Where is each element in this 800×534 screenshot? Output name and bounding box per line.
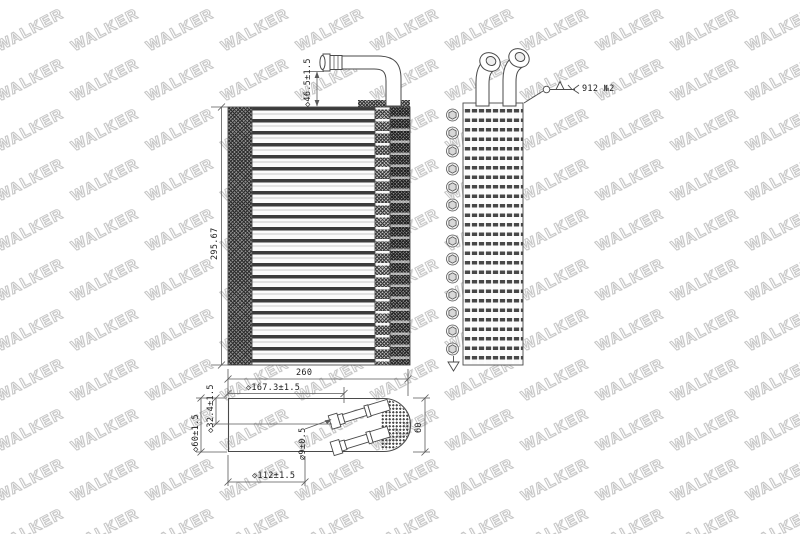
side-view-frame [463,103,523,365]
weld-note-text: 912 №2 [582,84,615,94]
technical-drawing-evaporator: WALKERWALKERWALKERWALKERWALKERWALKERWALK… [0,0,800,534]
dim-pipe-center-167: ◇167.3±1.5 [246,383,300,393]
weld-note-leader [524,82,579,104]
dim-pipe-dia-9: ⌀9±0.5 [298,427,308,460]
dim-pipe-offset-32: ◇32.4±1.5 [206,384,216,433]
dim-pipe-center-112: ◇112±1.5 [252,471,295,481]
front-view-frame [228,107,410,365]
side-view-hex-column [447,109,459,355]
dim-pipe-stub-height: ◇46.5±1.5 [303,58,313,107]
dim-overall-width: 260 [296,368,312,378]
side-view-pipes [476,45,532,106]
dimension-lines [196,72,430,487]
dim-depth: 60 [414,422,424,433]
bottom-view-pipes [328,398,390,456]
front-inlet-pipe [320,54,401,106]
dim-core-height: 295.67 [210,227,220,260]
datum-symbol [448,356,459,371]
dimension-arrows [315,72,332,425]
dim-depth-tol: ◇60±1.5 [191,414,201,452]
drawing-linework [0,0,800,534]
